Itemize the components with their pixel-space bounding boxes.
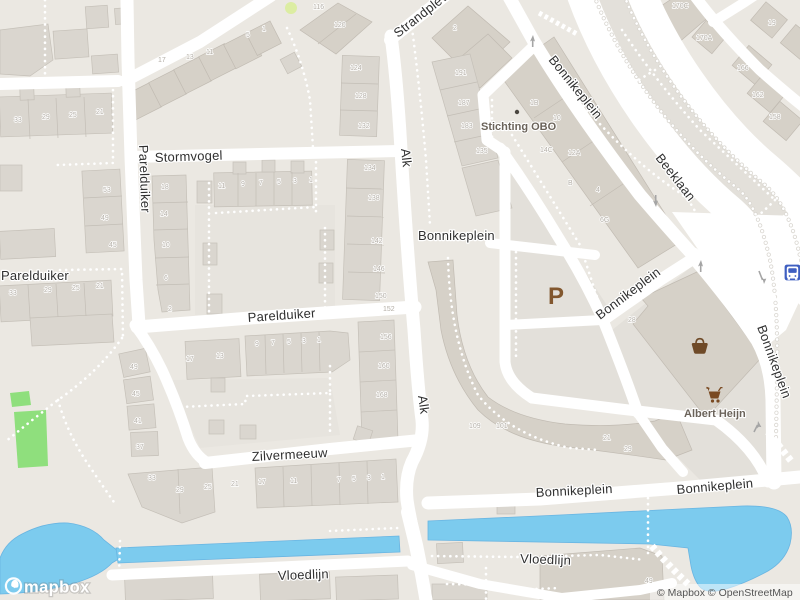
svg-text:11: 11 [206, 49, 213, 56]
svg-text:5: 5 [246, 32, 250, 39]
svg-text:21: 21 [603, 435, 611, 442]
svg-text:120: 120 [334, 22, 346, 29]
svg-text:1: 1 [381, 474, 385, 481]
svg-text:45: 45 [109, 242, 117, 249]
svg-text:21: 21 [96, 109, 104, 116]
svg-text:2: 2 [453, 25, 457, 32]
svg-text:1B: 1B [530, 100, 539, 107]
svg-text:33: 33 [148, 475, 156, 482]
svg-text:124: 124 [350, 65, 362, 72]
svg-text:132: 132 [358, 123, 370, 130]
svg-text:3: 3 [302, 338, 306, 345]
svg-text:101: 101 [496, 423, 508, 430]
svg-text:25: 25 [69, 112, 77, 119]
svg-text:Vloedlijn: Vloedlijn [278, 566, 329, 583]
svg-text:191: 191 [455, 70, 467, 77]
svg-text:11: 11 [290, 478, 297, 485]
svg-text:53: 53 [103, 187, 111, 194]
svg-text:© Mapbox © OpenStreetMap: © Mapbox © OpenStreetMap [657, 587, 793, 599]
svg-text:Alk: Alk [415, 394, 432, 415]
svg-text:12A: 12A [568, 150, 581, 157]
svg-text:116: 116 [313, 4, 324, 11]
svg-text:156: 156 [380, 334, 392, 341]
svg-text:29: 29 [176, 487, 184, 494]
svg-text:10: 10 [162, 242, 170, 249]
svg-text:28: 28 [628, 317, 636, 324]
svg-text:162: 162 [752, 92, 764, 99]
svg-text:2: 2 [168, 306, 172, 313]
svg-text:152: 152 [383, 306, 395, 313]
svg-text:1: 1 [317, 337, 321, 344]
svg-text:3: 3 [367, 475, 371, 482]
svg-text:5: 5 [352, 476, 356, 483]
svg-text:49: 49 [101, 215, 109, 222]
svg-text:3: 3 [293, 178, 297, 185]
svg-text:Albert Heijn: Albert Heijn [684, 408, 746, 420]
svg-text:Parelduiker: Parelduiker [1, 268, 69, 283]
svg-text:138: 138 [368, 195, 380, 202]
svg-text:33: 33 [14, 117, 22, 124]
svg-text:146: 146 [373, 266, 385, 273]
svg-text:17: 17 [158, 57, 166, 64]
svg-text:134: 134 [364, 165, 376, 172]
svg-text:33: 33 [9, 290, 17, 297]
svg-text:49: 49 [645, 578, 653, 585]
svg-text:37: 37 [136, 444, 144, 451]
svg-text:9: 9 [241, 181, 245, 188]
svg-text:45: 45 [132, 391, 140, 398]
svg-text:1: 1 [309, 177, 313, 184]
svg-text:5: 5 [277, 179, 281, 186]
svg-text:6G: 6G [600, 217, 609, 224]
svg-text:7: 7 [271, 340, 275, 347]
svg-text:150: 150 [375, 293, 387, 300]
svg-text:P: P [548, 283, 564, 310]
svg-text:14: 14 [160, 211, 168, 218]
svg-text:4: 4 [596, 187, 600, 194]
svg-text:25: 25 [204, 484, 212, 491]
svg-text:49: 49 [130, 364, 138, 371]
svg-text:21: 21 [231, 481, 239, 488]
svg-text:17: 17 [186, 356, 194, 363]
svg-text:Stichting OBO: Stichting OBO [481, 121, 557, 133]
svg-text:160: 160 [378, 363, 390, 370]
svg-text:17: 17 [258, 479, 266, 486]
svg-text:187: 187 [458, 100, 470, 107]
svg-text:1: 1 [262, 26, 266, 33]
svg-text:6: 6 [164, 275, 168, 282]
svg-text:B: B [568, 180, 573, 187]
svg-text:7: 7 [337, 477, 341, 484]
svg-text:25: 25 [72, 285, 80, 292]
svg-text:170C: 170C [672, 3, 689, 10]
svg-text:10: 10 [553, 115, 561, 122]
svg-text:11: 11 [218, 183, 225, 190]
svg-text:9: 9 [255, 341, 259, 348]
svg-text:14C: 14C [540, 147, 553, 154]
svg-text:109: 109 [469, 423, 481, 430]
svg-text:19: 19 [768, 20, 776, 27]
svg-text:183: 183 [461, 123, 473, 130]
svg-text:Parelduiker: Parelduiker [136, 145, 153, 214]
svg-text:128: 128 [355, 93, 367, 100]
svg-text:Bonnikeplein: Bonnikeplein [418, 228, 495, 243]
svg-text:13: 13 [186, 54, 194, 61]
svg-text:168: 168 [376, 392, 388, 399]
svg-text:41: 41 [134, 418, 142, 425]
svg-text:142: 142 [371, 238, 383, 245]
svg-text:29: 29 [44, 287, 52, 294]
svg-text:158: 158 [769, 114, 781, 121]
svg-text:29: 29 [624, 446, 632, 453]
svg-text:7: 7 [259, 180, 263, 187]
svg-text:Vloedlijn: Vloedlijn [520, 551, 571, 568]
svg-text:13: 13 [216, 353, 224, 360]
svg-text:21: 21 [96, 283, 104, 290]
svg-text:29: 29 [42, 114, 50, 121]
svg-text:Alk: Alk [398, 148, 415, 168]
svg-text:170A: 170A [696, 35, 713, 42]
svg-text:5: 5 [287, 339, 291, 346]
svg-text:Stormvogel: Stormvogel [155, 148, 223, 165]
svg-text:18: 18 [161, 184, 169, 191]
svg-text:135: 135 [476, 148, 488, 155]
svg-text:mapbox: mapbox [24, 579, 90, 597]
svg-text:166: 166 [737, 65, 749, 72]
